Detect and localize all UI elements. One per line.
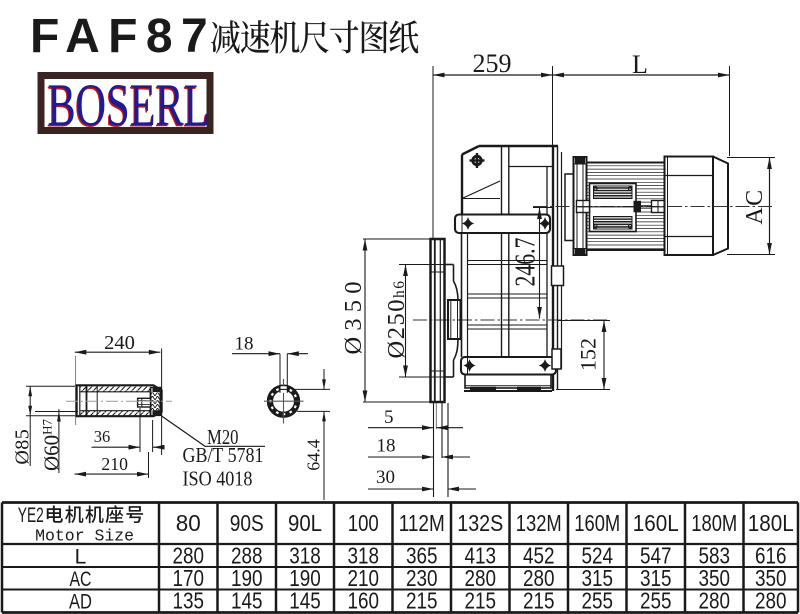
svg-text:160L: 160L — [633, 510, 679, 536]
svg-text:90S: 90S — [230, 510, 264, 536]
svg-text:135: 135 — [173, 588, 205, 614]
svg-text:180M: 180M — [691, 510, 737, 536]
svg-text:100: 100 — [348, 510, 379, 536]
svg-text:90L: 90L — [288, 510, 322, 536]
svg-text:246.7: 246.7 — [511, 238, 542, 287]
svg-text:132M: 132M — [516, 510, 562, 536]
svg-text:210: 210 — [101, 454, 128, 474]
svg-text:255: 255 — [582, 588, 614, 614]
svg-text:YE2: YE2 — [18, 504, 44, 527]
svg-text:280: 280 — [699, 588, 731, 614]
svg-text:80: 80 — [176, 510, 201, 536]
svg-text:160M: 160M — [574, 510, 620, 536]
svg-text:18: 18 — [377, 436, 396, 457]
svg-text:160: 160 — [348, 588, 380, 614]
svg-text:215: 215 — [406, 588, 438, 614]
svg-text:AC: AC — [70, 568, 92, 591]
svg-text:259: 259 — [473, 49, 512, 78]
svg-text:GB/T 5781: GB/T 5781 — [183, 443, 264, 467]
svg-text:180L: 180L — [748, 510, 794, 536]
svg-text:64.4: 64.4 — [304, 439, 324, 471]
svg-text:30: 30 — [376, 467, 395, 488]
svg-text:L: L — [75, 546, 87, 569]
svg-text:132S: 132S — [457, 510, 503, 536]
svg-text:255: 255 — [640, 588, 672, 614]
svg-text:Ø85: Ø85 — [12, 429, 34, 465]
svg-text:112M: 112M — [399, 510, 445, 536]
svg-text:ISO 4018: ISO 4018 — [183, 467, 253, 491]
svg-text:18: 18 — [235, 334, 254, 355]
svg-text:145: 145 — [289, 588, 321, 614]
svg-text:152: 152 — [576, 338, 601, 371]
svg-text:215: 215 — [523, 588, 555, 614]
svg-text:FAF87: FAF87 — [30, 10, 216, 63]
svg-text:BOSERL: BOSERL — [48, 72, 210, 138]
svg-text:240: 240 — [104, 332, 135, 354]
svg-text:AD: AD — [69, 591, 92, 614]
svg-text:Motor Size: Motor Size — [35, 528, 134, 547]
svg-text:145: 145 — [231, 588, 263, 614]
svg-text:L: L — [632, 50, 648, 79]
svg-text:5: 5 — [384, 407, 394, 428]
svg-text:36: 36 — [94, 427, 111, 446]
svg-text:280: 280 — [755, 588, 787, 614]
svg-text:215: 215 — [465, 588, 497, 614]
